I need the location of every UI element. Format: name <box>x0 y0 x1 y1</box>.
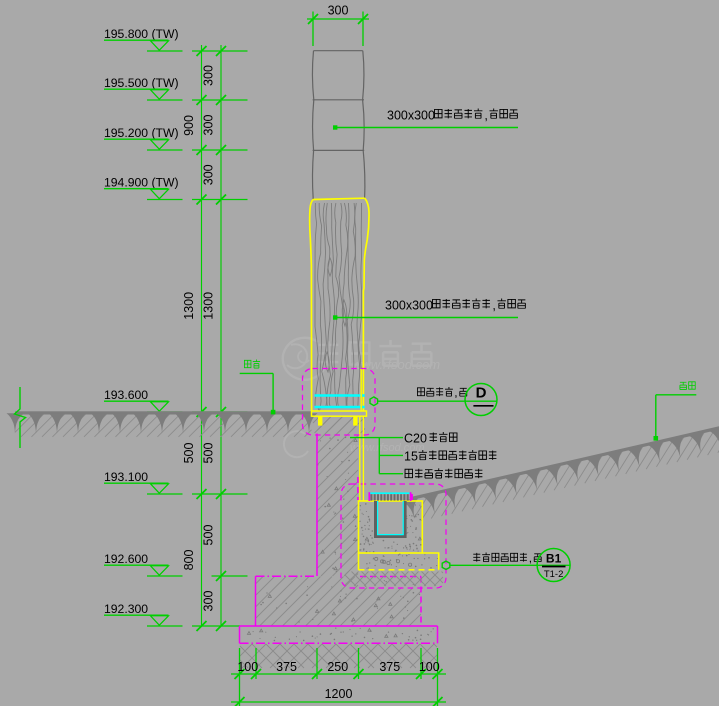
svg-text:300: 300 <box>202 115 216 136</box>
svg-text:192.600: 192.600 <box>104 552 148 566</box>
svg-text:192.300: 192.300 <box>104 602 148 616</box>
svg-text:195.200 (TW): 195.200 (TW) <box>104 126 179 140</box>
svg-text:300: 300 <box>202 591 216 612</box>
svg-text:193.600: 193.600 <box>104 388 148 402</box>
svg-text:100: 100 <box>419 660 440 674</box>
svg-text:300: 300 <box>328 4 349 18</box>
svg-text:15: 15 <box>404 450 418 464</box>
svg-text:250: 250 <box>327 660 348 674</box>
svg-text:500: 500 <box>202 443 216 464</box>
svg-text:300x300: 300x300 <box>387 109 435 123</box>
svg-text:1300: 1300 <box>202 292 216 320</box>
svg-text:300: 300 <box>202 65 216 86</box>
svg-text:800: 800 <box>182 550 196 571</box>
svg-text:195.500 (TW): 195.500 (TW) <box>104 76 179 90</box>
svg-text:T1-2: T1-2 <box>544 569 564 580</box>
svg-text:1300: 1300 <box>182 292 196 320</box>
svg-text:,: , <box>492 299 495 313</box>
svg-text:193.100: 193.100 <box>104 470 148 484</box>
svg-text:C20: C20 <box>404 432 427 446</box>
svg-text:300x300: 300x300 <box>385 299 433 313</box>
svg-text:D: D <box>476 385 487 402</box>
svg-text:900: 900 <box>182 115 196 136</box>
svg-text:B1: B1 <box>546 552 562 566</box>
svg-text:,: , <box>454 386 457 400</box>
svg-text:,: , <box>529 551 532 565</box>
svg-text:1200: 1200 <box>325 687 353 701</box>
svg-text:375: 375 <box>379 660 400 674</box>
svg-text:300: 300 <box>202 164 216 185</box>
svg-text:www.rfsod.com: www.rfsod.com <box>352 357 440 372</box>
svg-text:500: 500 <box>182 443 196 464</box>
svg-text:194.900 (TW): 194.900 (TW) <box>104 175 179 189</box>
svg-text:375: 375 <box>276 660 297 674</box>
svg-text:195.800 (TW): 195.800 (TW) <box>104 27 179 41</box>
svg-text:100: 100 <box>237 660 258 674</box>
svg-text:500: 500 <box>202 525 216 546</box>
svg-text:,: , <box>484 109 487 123</box>
